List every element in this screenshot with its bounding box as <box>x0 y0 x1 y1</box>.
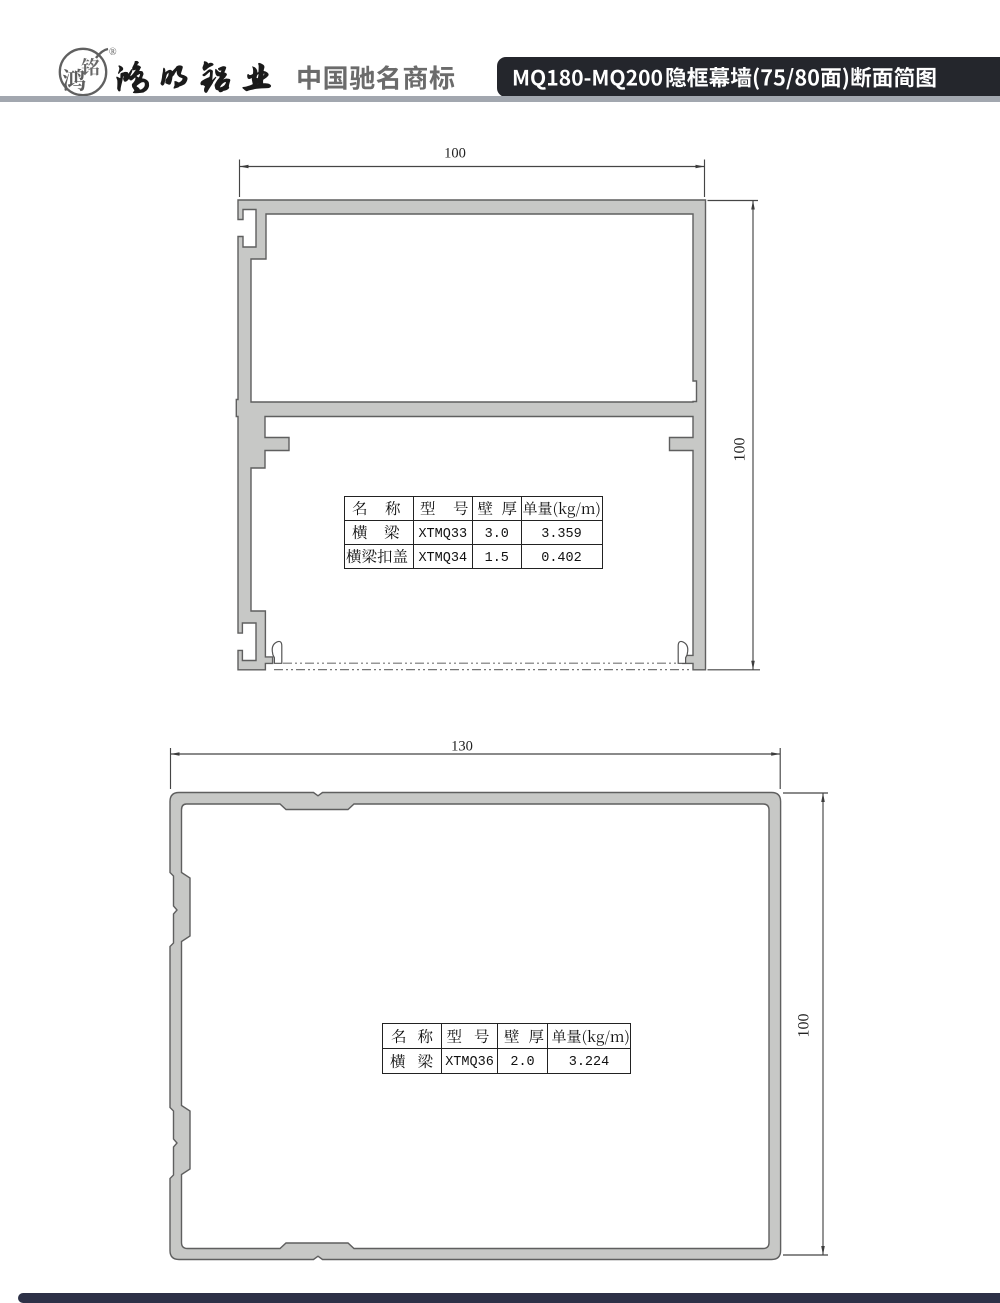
svg-text:130: 130 <box>451 739 473 755</box>
svg-text:100: 100 <box>796 1014 813 1038</box>
svg-text:100: 100 <box>732 438 749 462</box>
svg-text:100: 100 <box>444 146 466 162</box>
